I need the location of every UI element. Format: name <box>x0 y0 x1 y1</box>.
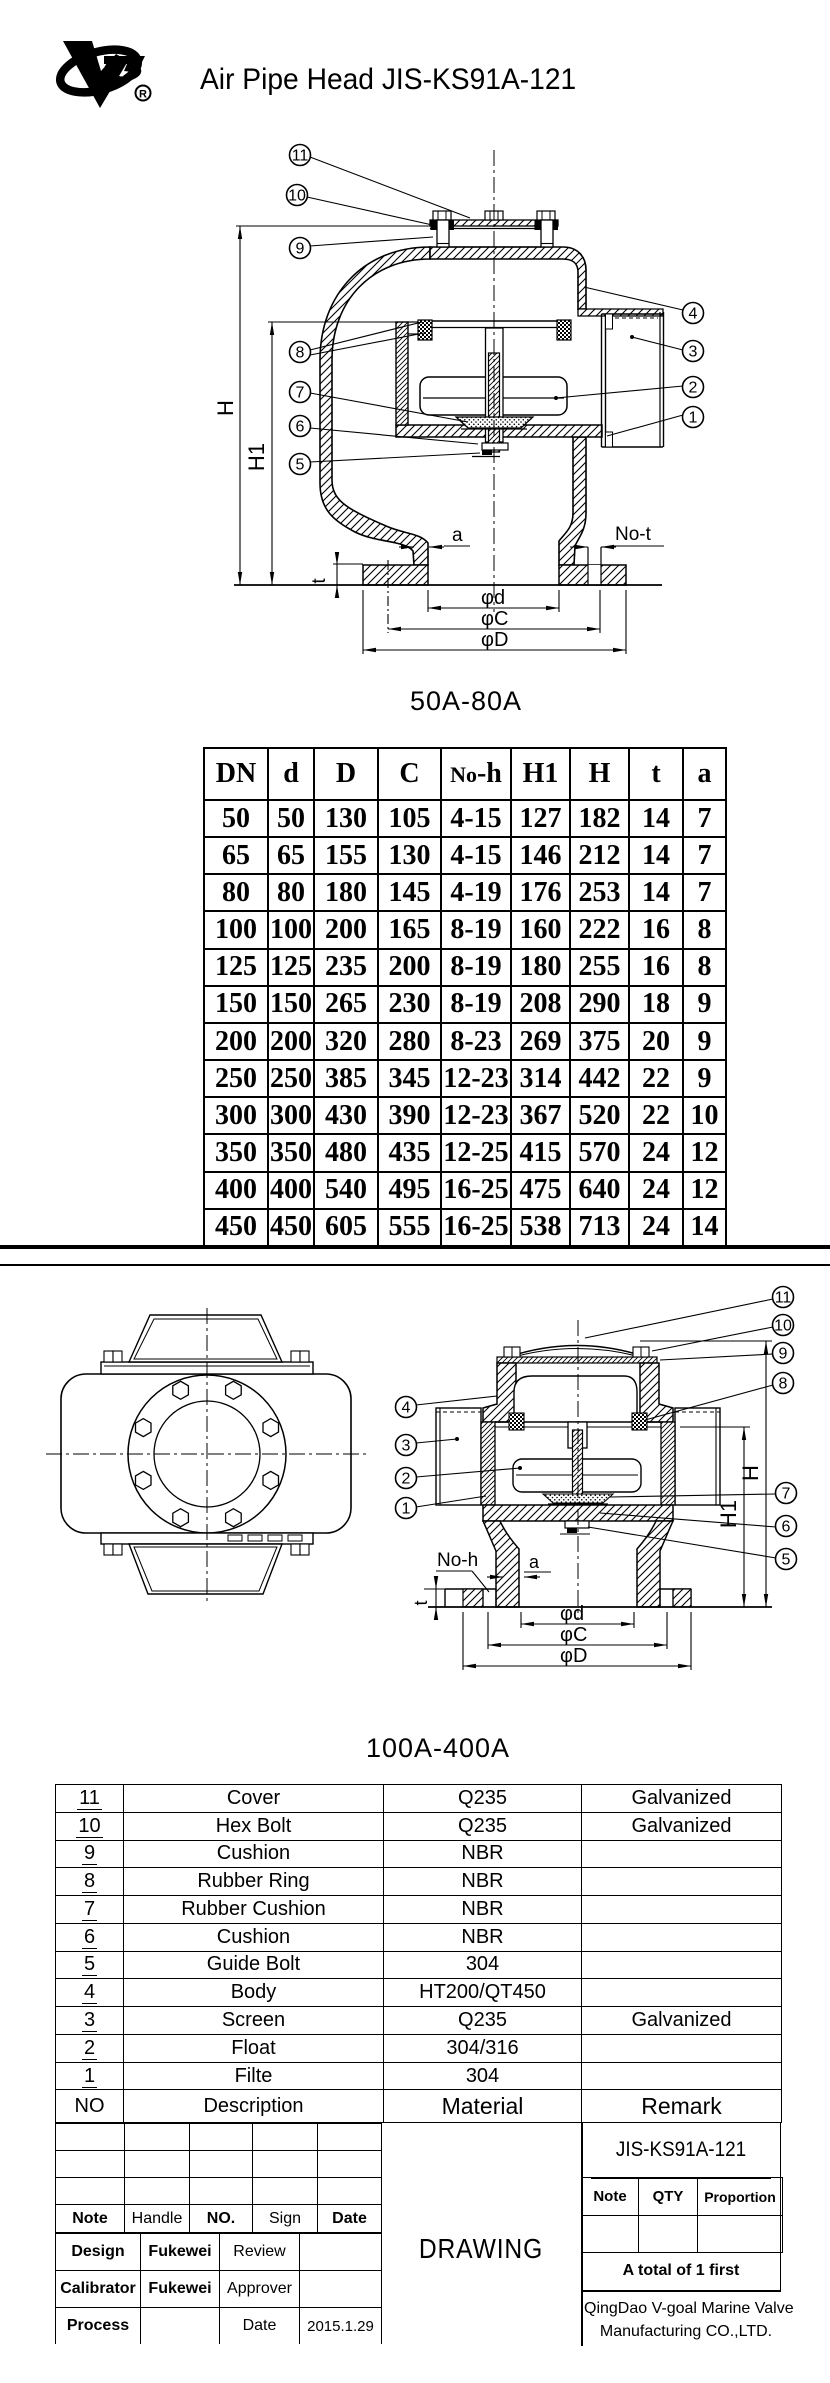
svg-text:10: 10 <box>288 188 306 205</box>
svg-text:a: a <box>452 525 463 546</box>
svg-text:φC: φC <box>481 608 508 630</box>
svg-text:6: 6 <box>782 1519 791 1536</box>
svg-text:8: 8 <box>779 1376 788 1393</box>
svg-text:1: 1 <box>402 1501 411 1518</box>
svg-text:2: 2 <box>402 1471 411 1488</box>
svg-text:1: 1 <box>689 410 698 427</box>
svg-text:No-h: No-h <box>437 1550 478 1571</box>
svg-text:5: 5 <box>296 457 305 474</box>
svg-text:11: 11 <box>775 1290 792 1307</box>
svg-text:2: 2 <box>689 380 698 397</box>
svg-text:11: 11 <box>292 148 309 165</box>
svg-text:3: 3 <box>689 344 698 361</box>
svg-text:9: 9 <box>779 1346 788 1363</box>
svg-text:φd: φd <box>560 1603 584 1625</box>
svg-text:6: 6 <box>296 419 305 436</box>
svg-text:H1: H1 <box>244 443 269 471</box>
svg-text:7: 7 <box>296 385 305 402</box>
svg-text:R: R <box>139 89 147 101</box>
svg-text:10: 10 <box>774 1318 792 1335</box>
svg-text:a: a <box>529 1552 540 1572</box>
svg-text:φd: φd <box>481 587 505 609</box>
svg-text:φC: φC <box>560 1624 587 1646</box>
svg-text:φD: φD <box>560 1645 587 1667</box>
svg-text:H: H <box>213 400 238 416</box>
svg-text:t: t <box>411 1600 431 1605</box>
svg-text:8: 8 <box>296 345 305 362</box>
svg-text:5: 5 <box>782 1552 791 1569</box>
svg-text:t: t <box>309 578 330 584</box>
svg-text:4: 4 <box>402 1400 411 1417</box>
svg-text:φD: φD <box>481 629 508 651</box>
svg-text:7: 7 <box>782 1486 791 1503</box>
svg-text:9: 9 <box>296 241 305 258</box>
svg-text:3: 3 <box>402 1438 411 1455</box>
svg-text:No-t: No-t <box>615 524 652 545</box>
svg-text:H: H <box>738 1465 763 1481</box>
svg-text:4: 4 <box>689 306 698 323</box>
